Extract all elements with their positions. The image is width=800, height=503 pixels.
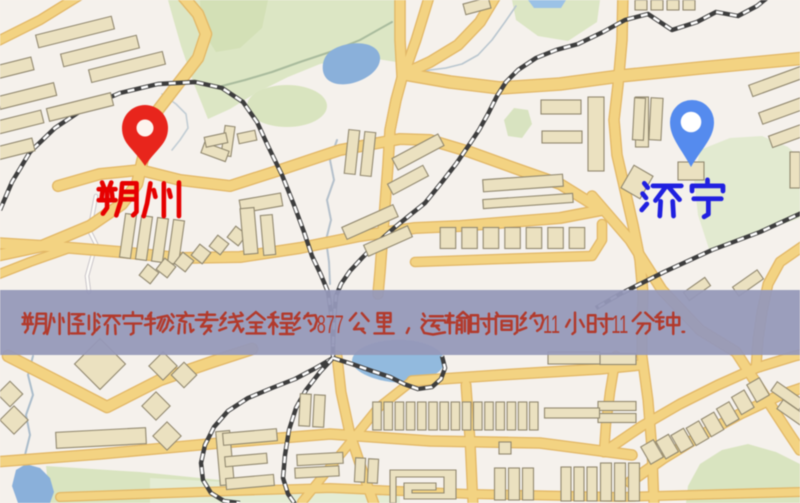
svg-text:11: 11 [543,311,560,339]
svg-text:877: 877 [317,311,344,339]
svg-text:11: 11 [611,311,628,339]
